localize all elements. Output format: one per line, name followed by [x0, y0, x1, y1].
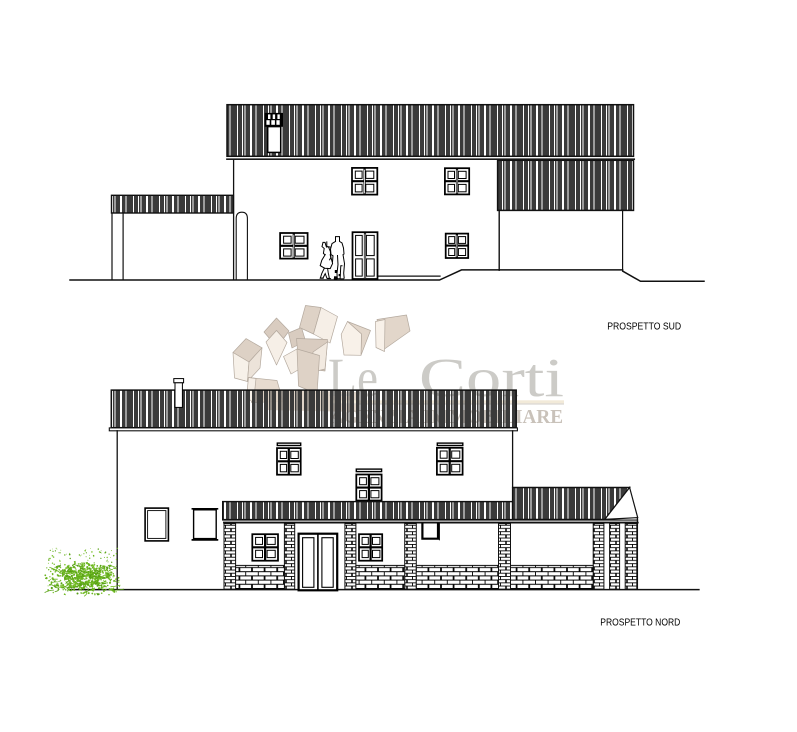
svg-text:PROSPETTO NORD: PROSPETTO NORD — [600, 617, 680, 628]
svg-text:PROSPETTO SUD: PROSPETTO SUD — [607, 322, 681, 333]
